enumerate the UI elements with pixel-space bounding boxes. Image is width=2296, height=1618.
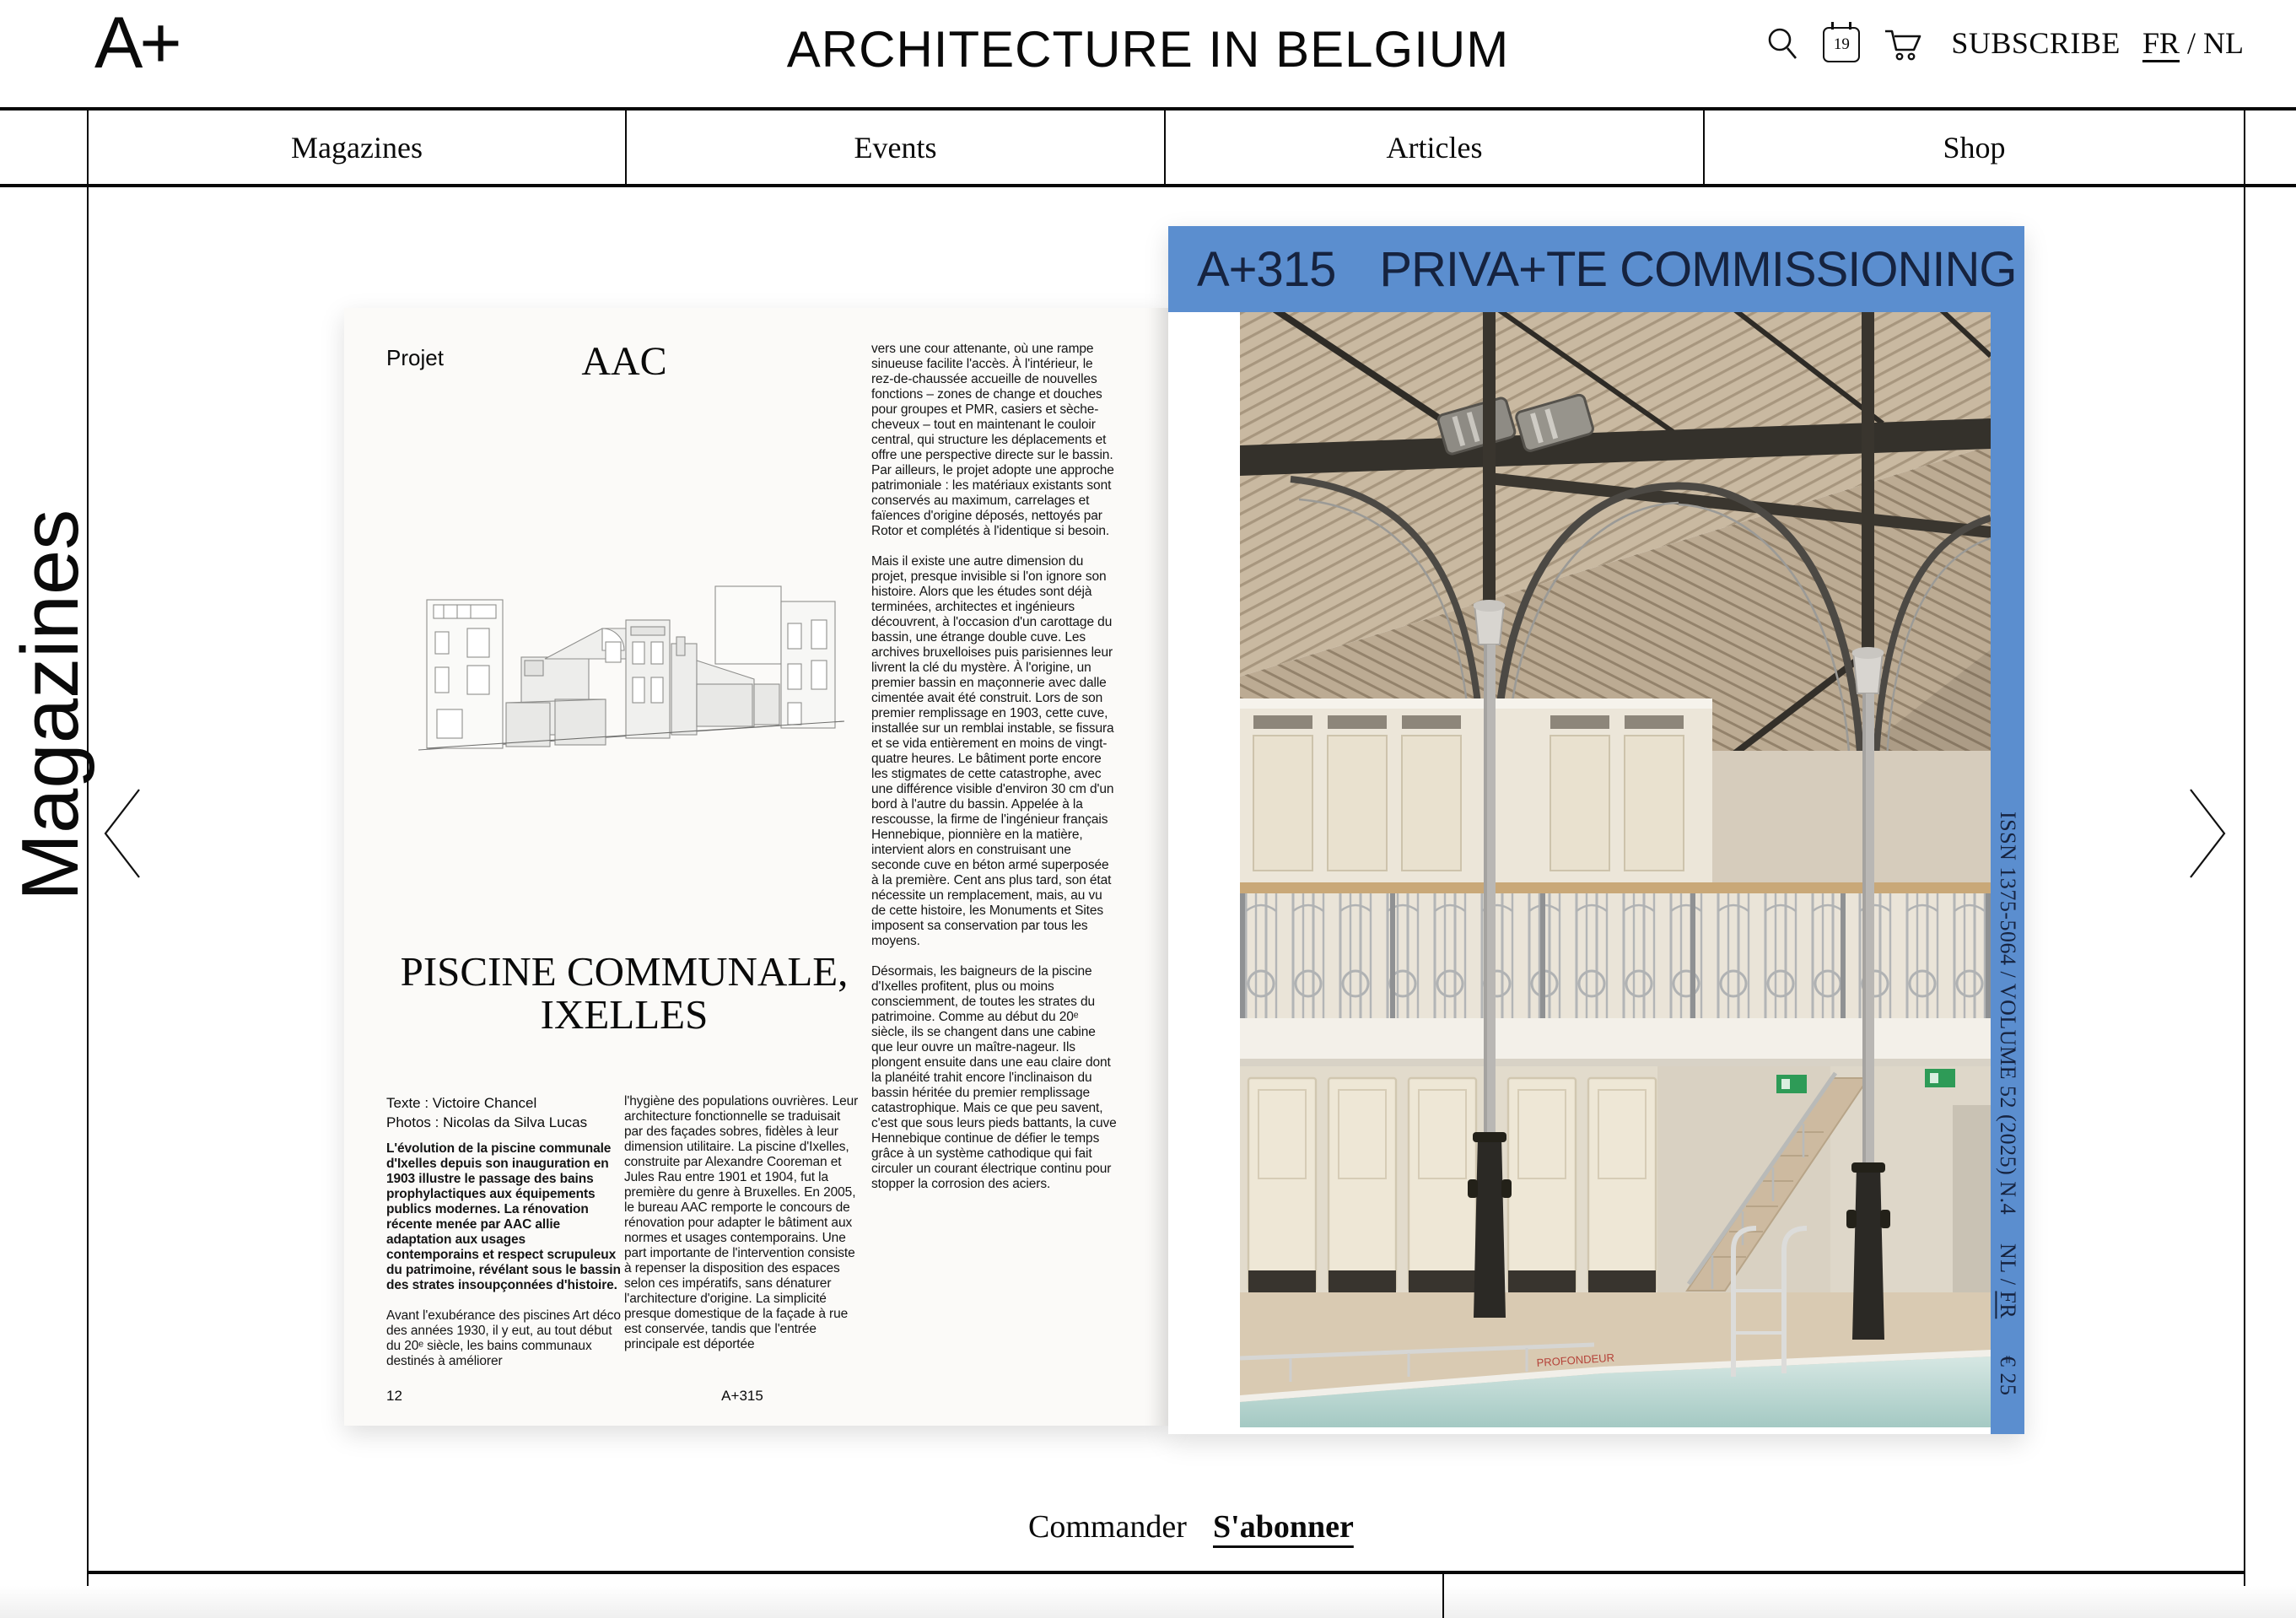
spine-text: ISSN 1375-5064 / VOLUME 52 (2025) N.4 NL… <box>1991 312 2024 1434</box>
section-label-magazines: Magazines <box>5 420 96 901</box>
subscribe-magazine-button[interactable]: S'abonner <box>1213 1508 1354 1545</box>
spine-issn: ISSN 1375-5064 / VOLUME 52 (2025) N.4 <box>1995 812 2020 1215</box>
article-credits: Texte : Victoire Chancel Photos : Nicola… <box>386 1094 587 1133</box>
spine-price: € 25 <box>1995 1356 2020 1396</box>
right-rail-line <box>2244 111 2245 1618</box>
magazine-cover[interactable]: A+315 PRIVA+TE COMMISSIONING <box>1168 226 2024 1434</box>
calendar-icon[interactable]: 19 <box>1823 27 1860 62</box>
cover-issue-number: A+315 <box>1197 241 1335 298</box>
issue-footer: A+315 <box>624 1388 860 1405</box>
bottom-border <box>87 1571 2245 1574</box>
cover-photo: PROFONDEUR <box>1240 312 1991 1427</box>
header-utils: 19 SUBSCRIBE FR / NL <box>1764 24 2244 62</box>
spine-languages: NL / FR <box>1995 1243 2020 1319</box>
cover-banner: A+315 PRIVA+TE COMMISSIONING <box>1168 226 2024 312</box>
lang-nl[interactable]: NL <box>2203 25 2244 61</box>
gallery-railing <box>1240 882 1991 1066</box>
carousel-prev-button[interactable] <box>100 786 143 881</box>
nav-item-magazines[interactable]: Magazines <box>89 111 625 184</box>
article-column-2: l'hygiène des populations ouvrières. Leu… <box>624 1094 860 1367</box>
carousel-next-button[interactable] <box>2186 786 2230 881</box>
cart-icon[interactable] <box>1882 24 1924 62</box>
elevation-drawing <box>418 576 844 766</box>
bottom-fade <box>0 1586 2296 1618</box>
footer-divider <box>1442 1574 1444 1618</box>
magazine-left-page[interactable]: Projet AAC <box>344 308 1168 1426</box>
main-nav: Magazines Events Articles Shop <box>0 111 2296 184</box>
page: A+ ARCHITECTURE IN BELGIUM 19 SUBSCRIBE … <box>0 0 2296 1618</box>
search-icon[interactable] <box>1764 24 1801 62</box>
page-number: 12 <box>386 1388 402 1405</box>
nav-item-events[interactable]: Events <box>627 111 1164 184</box>
nav-item-shop[interactable]: Shop <box>1705 111 2244 184</box>
article-column-3: vers une cour attenante, où une rampe si… <box>871 342 1118 1207</box>
calendar-day: 19 <box>1834 35 1850 54</box>
article-title: PISCINE COMMUNALE, IXELLES <box>344 951 904 1037</box>
cover-spine: ISSN 1375-5064 / VOLUME 52 (2025) N.4 NL… <box>1991 312 2024 1434</box>
nav-border-bottom <box>0 184 2296 187</box>
lang-separator: / <box>2187 25 2196 61</box>
nav-item-articles[interactable]: Articles <box>1166 111 1703 184</box>
article-column-1: L'évolution de la piscine communale d'Ix… <box>386 1141 621 1384</box>
lang-fr[interactable]: FR <box>2142 25 2180 61</box>
cover-issue-title: PRIVA+TE COMMISSIONING <box>1379 241 2016 298</box>
order-button[interactable]: Commander <box>1028 1508 1187 1545</box>
subscribe-button[interactable]: SUBSCRIBE <box>1951 25 2121 61</box>
language-switch: FR / NL <box>2142 25 2244 61</box>
studio-name: AAC <box>344 338 904 385</box>
